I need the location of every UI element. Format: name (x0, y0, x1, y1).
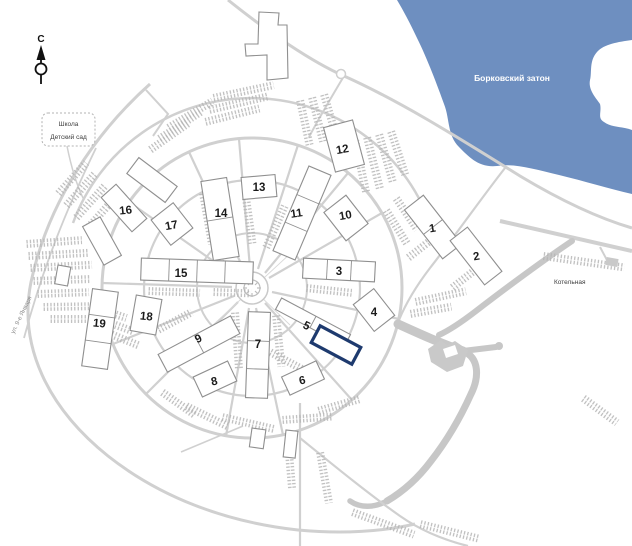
north-arrow-label: С (37, 34, 44, 45)
building-3-label[interactable]: 3 (336, 266, 342, 278)
building-4-label[interactable]: 4 (371, 307, 378, 319)
building-17-label[interactable]: 17 (164, 219, 179, 233)
north-arrow-ring (36, 64, 47, 75)
water-label: Борковский затон (474, 73, 550, 83)
school-label: Школа (59, 121, 79, 128)
building-15-label[interactable]: 15 (175, 268, 188, 280)
site-plan-map: Борковский затон (0, 0, 632, 546)
building-11-label[interactable]: 11 (290, 207, 304, 221)
north-arrow-head (37, 45, 46, 60)
building-14-label[interactable]: 14 (215, 208, 228, 220)
building-7-label[interactable]: 7 (255, 339, 261, 351)
school-kindergarten-block: Школа Детский сад (42, 113, 95, 146)
building-12-label[interactable]: 12 (335, 143, 350, 157)
building-15[interactable] (141, 258, 254, 284)
building-19-label[interactable]: 19 (92, 317, 106, 330)
site-plan-svg: Борковский затон (0, 0, 632, 546)
north-arrow: С (36, 34, 47, 84)
building-7[interactable] (246, 312, 271, 399)
building-16-label[interactable]: 16 (119, 204, 133, 217)
building-13-label[interactable]: 13 (253, 182, 266, 194)
boiler-house-label: Котельная (554, 279, 586, 286)
kindergarten-label: Детский сад (50, 133, 87, 141)
water-area: Борковский затон (397, 0, 632, 194)
building-10-label[interactable]: 10 (338, 209, 353, 223)
building-18-label[interactable]: 18 (139, 310, 154, 323)
